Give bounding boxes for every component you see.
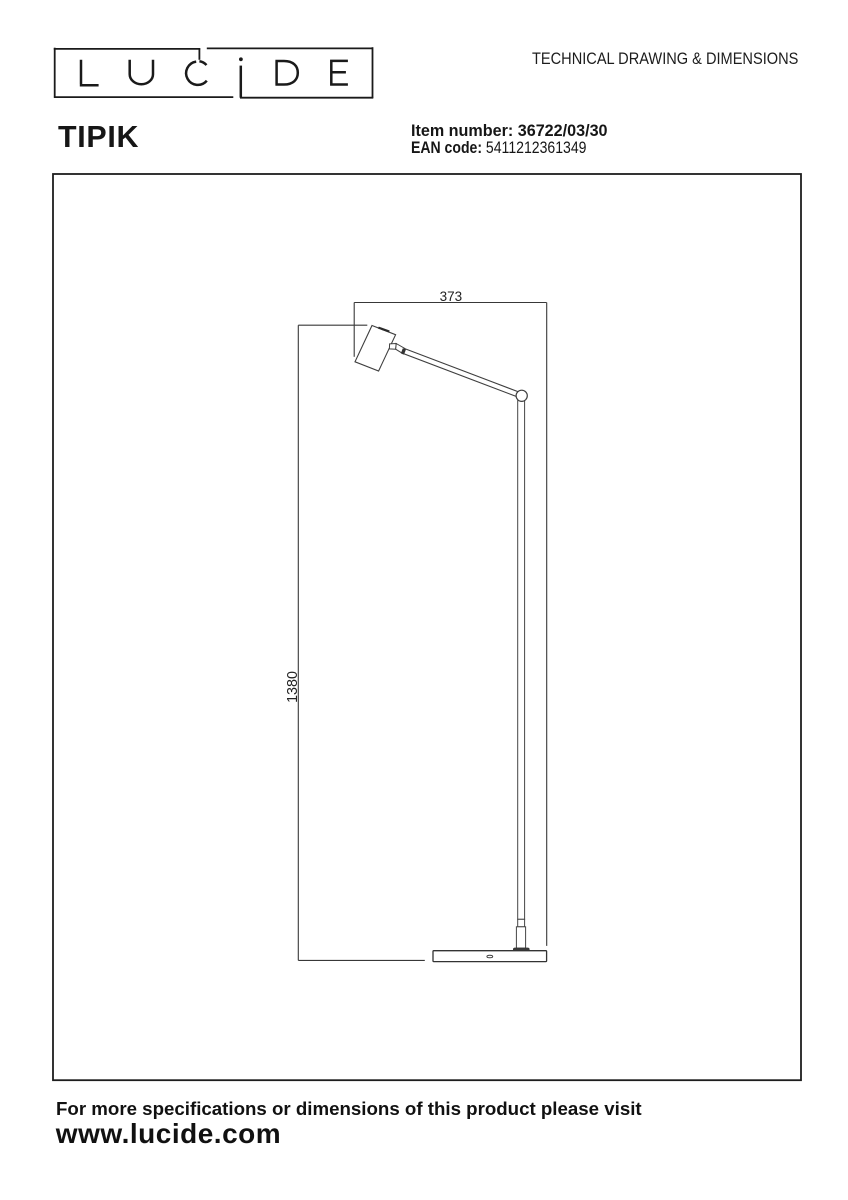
svg-text:1380: 1380 (285, 671, 301, 703)
svg-text:373: 373 (440, 289, 463, 304)
